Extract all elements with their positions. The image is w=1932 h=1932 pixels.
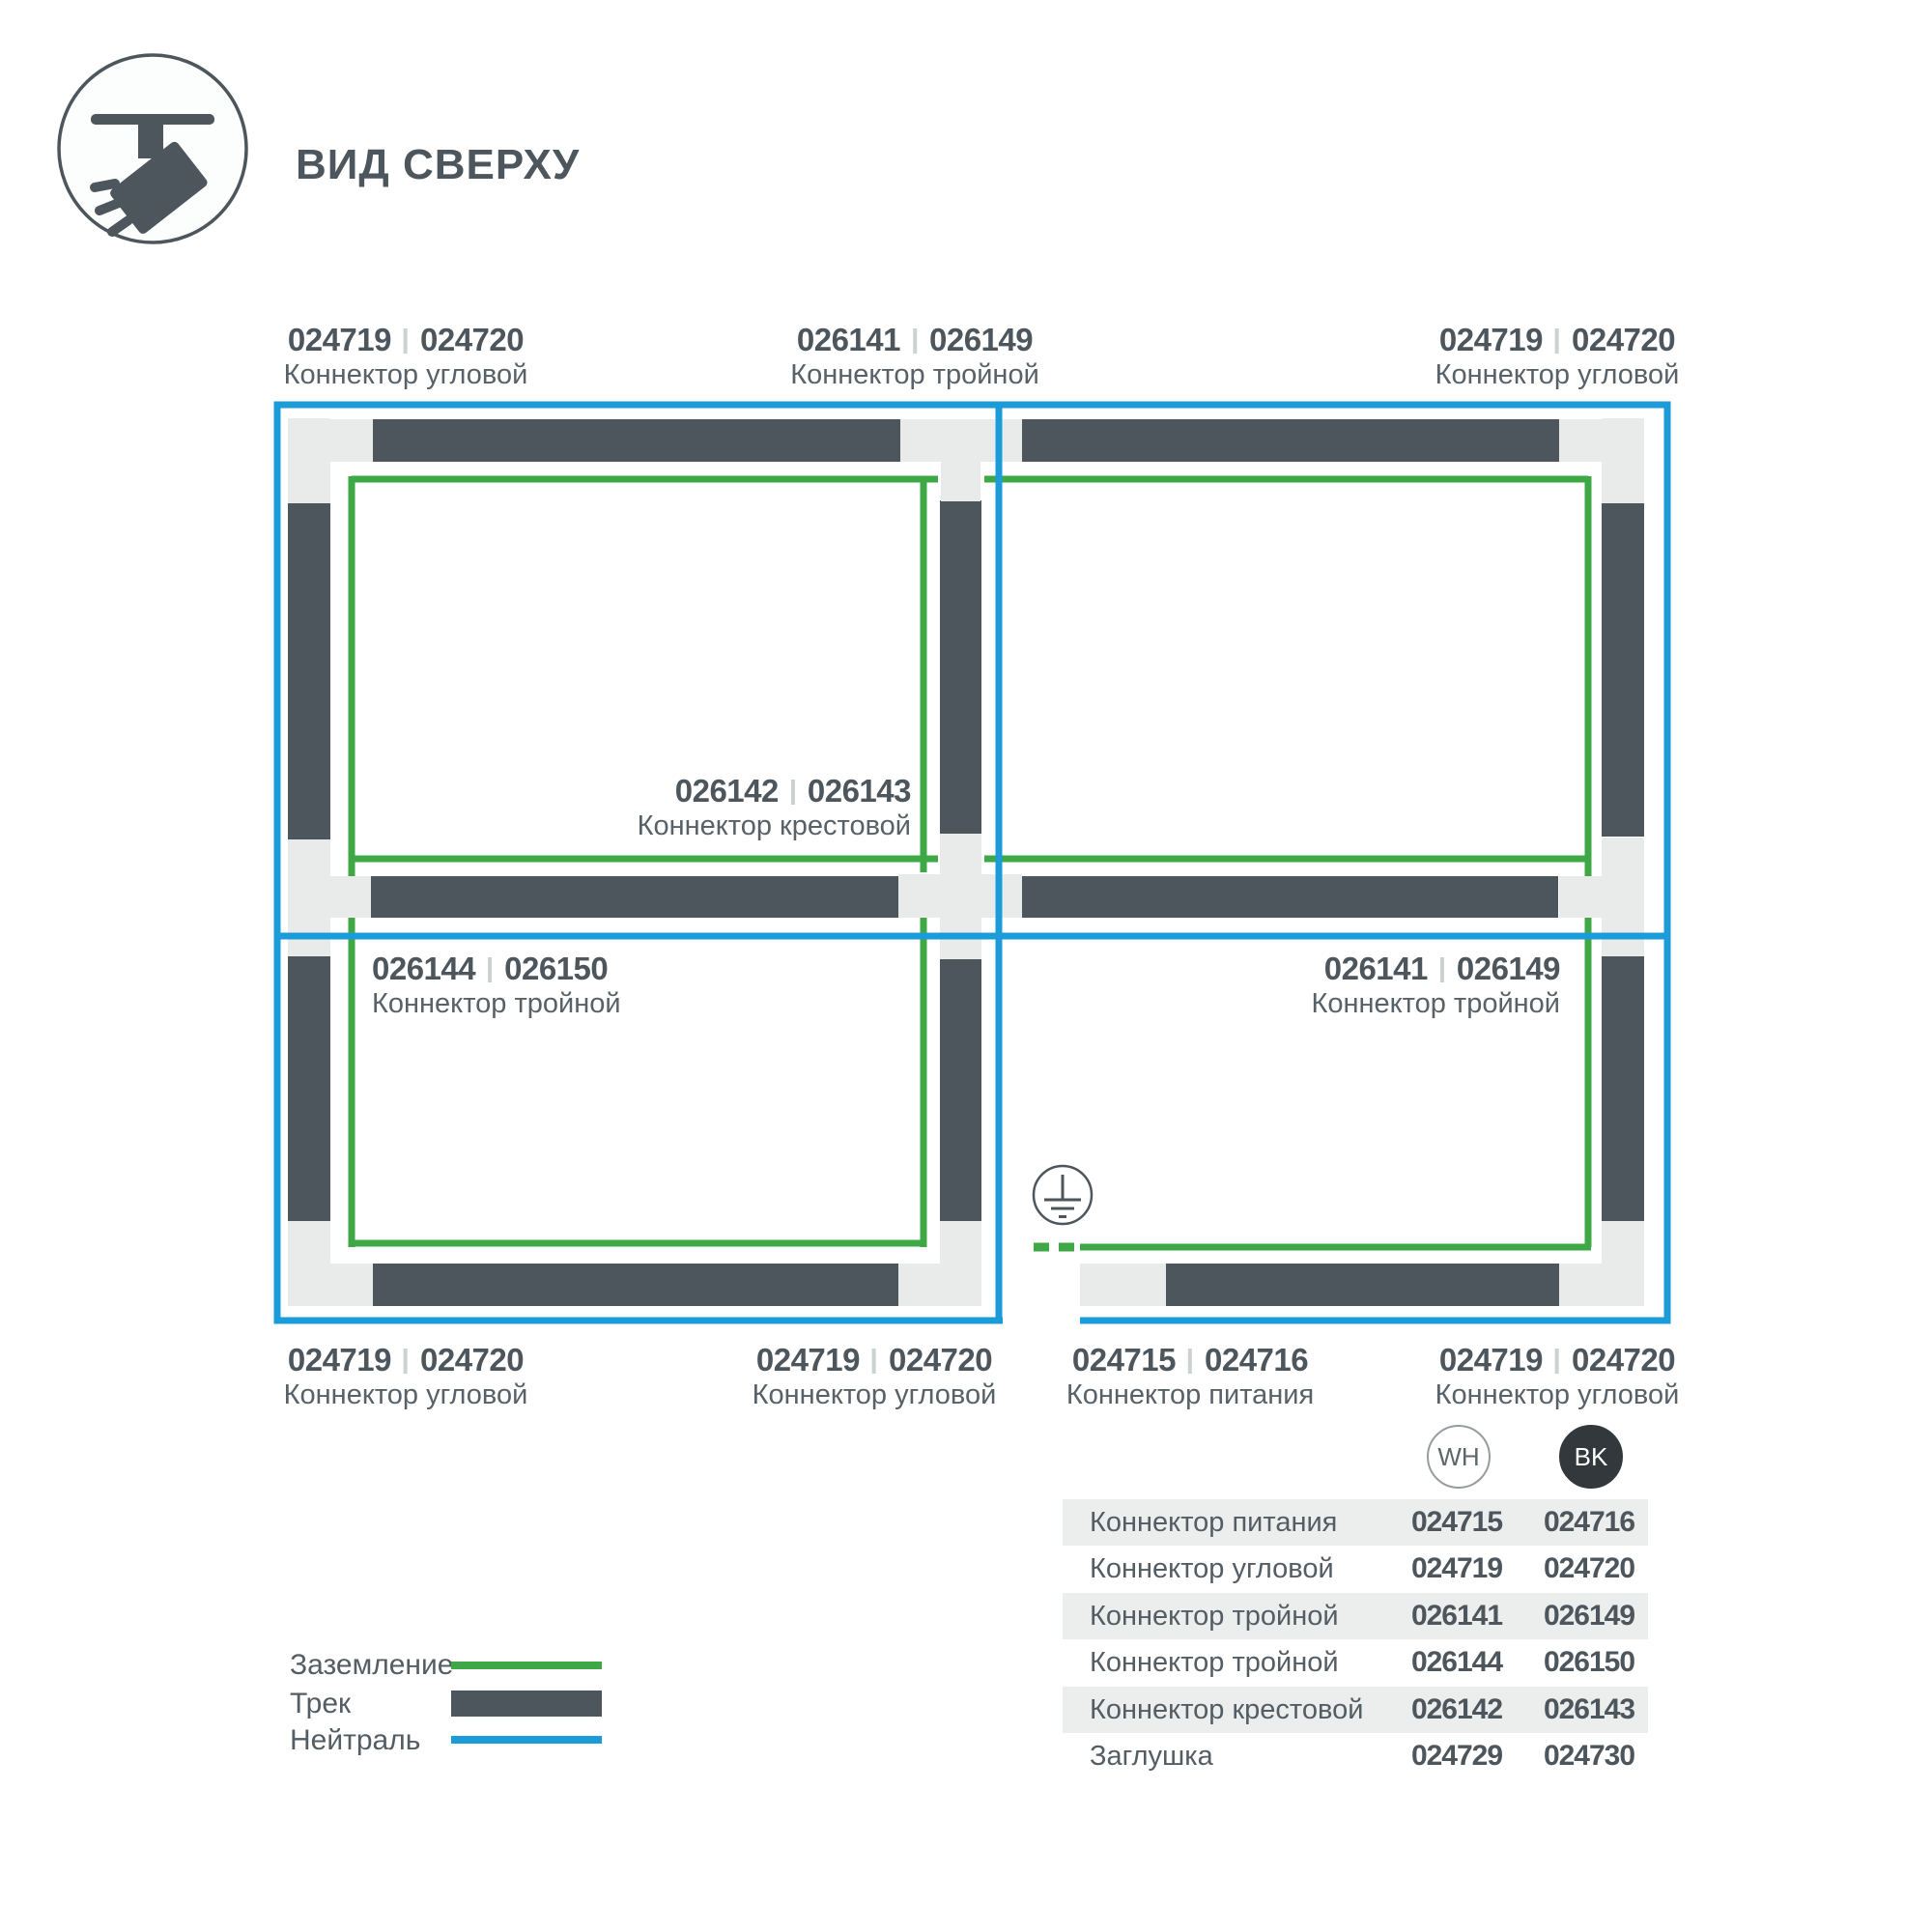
- row-bk-code: 024716: [1507, 1499, 1671, 1546]
- connector-label: 026142026143 Коннектор крестовой: [638, 773, 911, 842]
- row-name: Коннектор тройной: [1090, 1639, 1339, 1686]
- part-number: 024715: [1072, 1342, 1176, 1378]
- connector-label: 024719024720 Коннектор угловой: [284, 1342, 528, 1411]
- connector-name: Коннектор питания: [1066, 1378, 1314, 1411]
- color-code: WH: [1437, 1442, 1479, 1472]
- connector-name: Коннектор угловой: [1435, 1378, 1680, 1411]
- connector-name: Коннектор крестовой: [638, 810, 911, 842]
- part-number: 024716: [1205, 1342, 1308, 1378]
- label-separator: [872, 1349, 876, 1374]
- label-separator: [1440, 957, 1444, 982]
- label-separator: [488, 957, 492, 982]
- table-row: Заглушка 024729 024730: [1063, 1733, 1648, 1779]
- row-bk-code: 026149: [1507, 1593, 1671, 1639]
- connector-label: 026141026149 Коннектор тройной: [1311, 951, 1560, 1020]
- row-bk-code: 026150: [1507, 1639, 1671, 1686]
- part-number: 026149: [1457, 951, 1560, 986]
- row-name: Заглушка: [1090, 1733, 1213, 1779]
- part-number: 026141: [797, 322, 900, 357]
- part-number: 024720: [420, 1342, 524, 1378]
- table-row: Коннектор тройной 026141 026149: [1063, 1593, 1648, 1639]
- part-number: 026150: [504, 951, 608, 986]
- part-number: 026143: [808, 773, 911, 809]
- legend-label-ground: Заземление: [290, 1649, 453, 1682]
- part-number: 026149: [929, 322, 1033, 357]
- part-number: 026142: [675, 773, 779, 809]
- part-number: 026144: [372, 951, 475, 986]
- color-badge-white: WH: [1427, 1425, 1491, 1489]
- label-separator: [1188, 1349, 1192, 1374]
- table-row: Коннектор угловой 024719 024720: [1063, 1546, 1648, 1592]
- legend-label-track: Трек: [290, 1688, 351, 1720]
- part-number: 024719: [288, 322, 391, 357]
- connector-label: 024719024720 Коннектор угловой: [284, 322, 528, 391]
- label-separator: [404, 328, 408, 354]
- row-bk-code: 024720: [1507, 1546, 1671, 1592]
- connector-name: Коннектор угловой: [284, 1378, 528, 1411]
- row-bk-code: 026143: [1507, 1687, 1671, 1733]
- legend-green-line: [451, 1662, 602, 1669]
- row-bk-code: 024730: [1507, 1733, 1671, 1779]
- row-name: Коннектор питания: [1090, 1499, 1337, 1546]
- part-number: 024720: [1572, 1342, 1675, 1378]
- label-separator: [913, 328, 917, 354]
- legend-dark-bar: [451, 1690, 602, 1717]
- part-number: 024719: [288, 1342, 391, 1378]
- catalog-page: { "header": { "title": "ВИД СВЕРХУ", "ic…: [0, 0, 1932, 1932]
- connector-label: 024719024720 Коннектор угловой: [1435, 1342, 1680, 1411]
- label-separator: [404, 1349, 408, 1374]
- connector-label: 026141026149 Коннектор тройной: [790, 322, 1039, 391]
- label-separator: [1555, 1349, 1559, 1374]
- part-number: 024720: [420, 322, 524, 357]
- table-row: Коннектор тройной 026144 026150: [1063, 1639, 1648, 1686]
- row-name: Коннектор угловой: [1090, 1546, 1334, 1592]
- connector-label: 024715024716 Коннектор питания: [1066, 1342, 1314, 1411]
- connector-name: Коннектор тройной: [372, 987, 621, 1020]
- label-separator: [791, 780, 795, 805]
- earth-ground-icon: [1034, 1166, 1092, 1224]
- connector-name: Коннектор тройной: [790, 358, 1039, 391]
- connector-name: Коннектор тройной: [1311, 987, 1560, 1020]
- part-number: 024720: [889, 1342, 992, 1378]
- legend-blue-line: [451, 1736, 602, 1744]
- row-name: Коннектор тройной: [1090, 1593, 1339, 1639]
- part-number: 024719: [1439, 1342, 1543, 1378]
- connector-label: 026144026150 Коннектор тройной: [372, 951, 621, 1020]
- connector-name: Коннектор угловой: [284, 358, 528, 391]
- label-separator: [1555, 328, 1559, 354]
- part-number: 024720: [1572, 322, 1675, 357]
- color-badge-black: BK: [1559, 1425, 1623, 1489]
- connector-name: Коннектор угловой: [753, 1378, 997, 1411]
- part-number: 024719: [756, 1342, 860, 1378]
- connector-label: 024719024720 Коннектор угловой: [1435, 322, 1680, 391]
- part-number: 026141: [1324, 951, 1428, 986]
- connector-name: Коннектор угловой: [1435, 358, 1680, 391]
- table-row: Коннектор питания 024715 024716: [1063, 1499, 1648, 1546]
- table-row: Коннектор крестовой 026142 026143: [1063, 1687, 1648, 1733]
- legend-label-neutral: Нейтраль: [290, 1724, 420, 1757]
- row-name: Коннектор крестовой: [1090, 1687, 1363, 1733]
- color-code: BK: [1575, 1442, 1608, 1472]
- connector-label: 024719024720 Коннектор угловой: [753, 1342, 997, 1411]
- part-number: 024719: [1439, 322, 1543, 357]
